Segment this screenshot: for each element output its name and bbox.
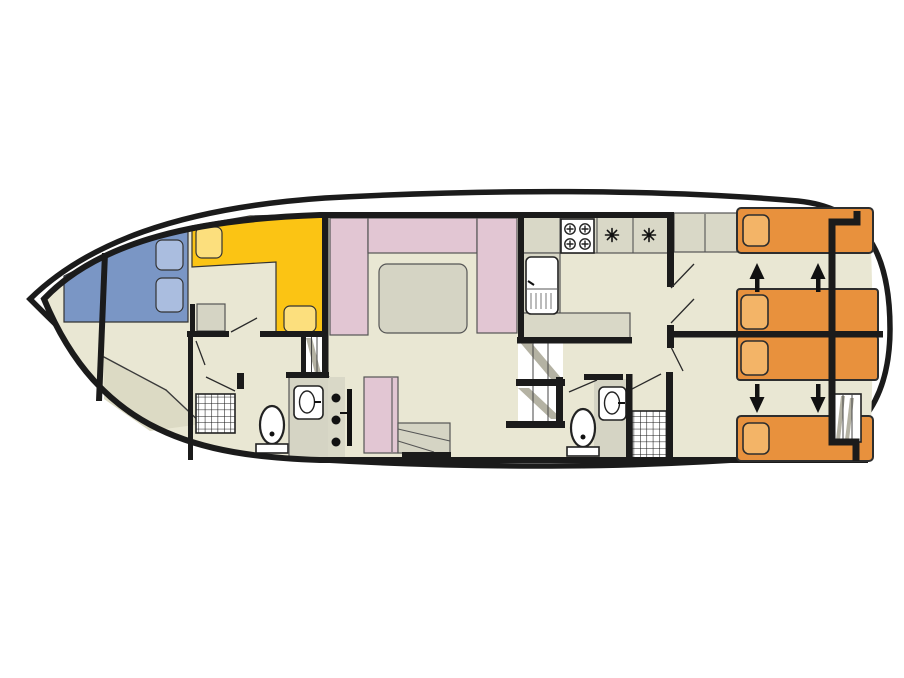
aft-bathroom-wall-mid	[626, 374, 633, 460]
aft-bathroom-wall-right	[666, 372, 673, 460]
toilet-aft-base	[567, 447, 599, 456]
toilet-aft	[571, 409, 595, 447]
toilet-forward	[260, 406, 284, 444]
helm-cushion-1	[196, 227, 222, 258]
helm-cushion-2	[284, 306, 316, 332]
houseboat-floorplan	[0, 0, 904, 678]
saloon-forward-wall	[322, 214, 329, 374]
galley-bottom-wall	[517, 337, 632, 344]
bow-cabin-wall-h2	[260, 331, 328, 337]
bow-berth-cushion-1	[156, 240, 183, 270]
forward-bathroom-wall-left	[188, 336, 193, 460]
pillow	[743, 423, 769, 454]
pillow	[743, 215, 769, 246]
saloon-sofa-top	[368, 218, 477, 253]
washroom	[289, 377, 352, 460]
aft-bathroom-wall-top	[584, 374, 623, 380]
forward-companionway	[301, 337, 322, 374]
washroom-top-wall	[286, 372, 329, 378]
mid-cabin-berth	[364, 377, 398, 453]
toilet-forward-base	[256, 444, 288, 453]
pocket-door-bar	[347, 389, 352, 446]
pillow	[741, 295, 768, 329]
freezer-snowflake-icon	[643, 229, 656, 242]
pillow	[741, 341, 768, 375]
stern-stairs	[834, 394, 861, 442]
shower-aft	[632, 411, 667, 458]
forward-bathroom-wall-stub	[237, 373, 244, 389]
corridor-wall-stub	[667, 325, 674, 348]
floorplan-image	[0, 0, 904, 678]
saloon-sofa-right	[477, 218, 517, 333]
saloon-table	[379, 264, 467, 333]
stairs-right-wall	[556, 377, 563, 428]
forward-steps-wall	[301, 337, 306, 374]
fridge-snowflake-icon	[606, 229, 619, 242]
toilet-forward-flush	[270, 432, 275, 437]
saloon-sofa-left	[330, 218, 368, 335]
bow-cabin-wall-h1	[187, 331, 229, 337]
saloon	[330, 218, 517, 335]
shower-forward	[196, 394, 235, 433]
galley-saloon-wall	[518, 214, 524, 342]
galley-counter-return	[523, 313, 630, 338]
toilet-aft-flush	[581, 435, 586, 440]
bow-cabin-table	[197, 304, 225, 331]
galley-corridor-wall	[667, 214, 674, 287]
bow-berth-cushion-2	[156, 278, 183, 312]
stern-cabin-divider-wall	[671, 331, 883, 338]
